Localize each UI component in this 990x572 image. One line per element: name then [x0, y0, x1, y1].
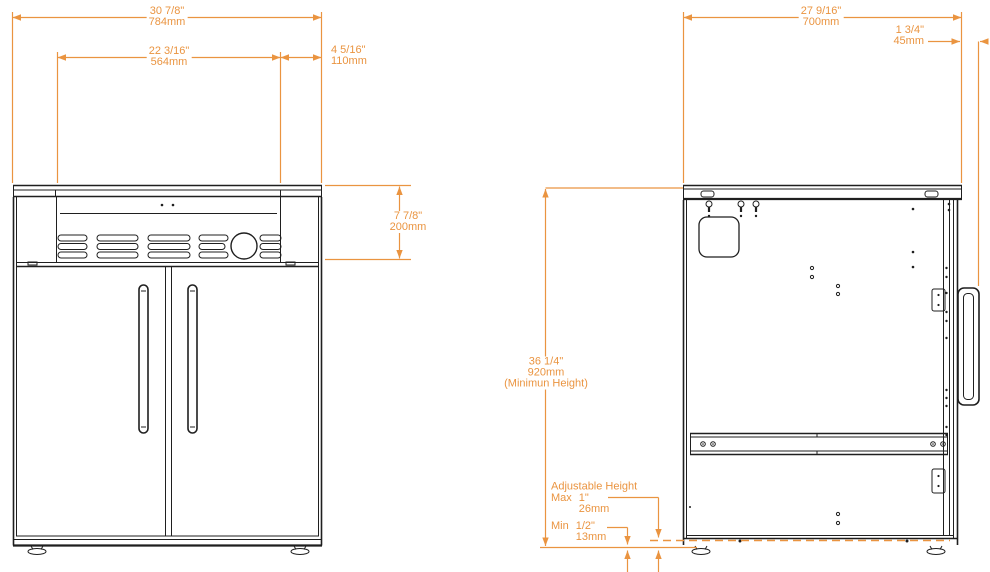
adjustable-height-title: Adjustable Height — [549, 482, 639, 493]
dimension-diagram: 30 7/8" 784mm 22 3/16" 564mm 4 5/16" 110… — [0, 0, 990, 572]
access-panel — [699, 217, 739, 257]
dim-front-inner-width-label: 22 3/16" 564mm — [147, 46, 192, 68]
control-panel — [57, 197, 282, 262]
front-feet — [28, 546, 309, 555]
adjustable-height-min: Min 1/2" 13mm — [549, 521, 608, 543]
cross-rail — [690, 433, 948, 455]
adjustable-height-max: Max 1" 26mm — [549, 493, 611, 515]
dim-handle-depth-label: 1 3/4" 45mm — [891, 25, 926, 47]
front-view-drawing — [13, 185, 322, 555]
dim-front-overall-width-label: 30 7/8" 784mm — [147, 6, 188, 28]
dim-back-overall-width-label: 27 9/16" 700mm — [799, 6, 844, 28]
back-view-drawing — [683, 185, 979, 555]
dimension-lines — [13, 12, 987, 572]
door-handle-left — [139, 285, 148, 433]
diagram-linework — [0, 0, 990, 572]
control-knob — [231, 233, 257, 259]
hinge-mark-left — [28, 262, 37, 265]
vent-slats — [58, 235, 281, 258]
double-doors — [139, 267, 197, 536]
top-bolts — [706, 201, 759, 217]
dim-min-height-label: 36 1/4" 920mm (Minimun Height) — [502, 357, 590, 390]
back-feet — [692, 546, 945, 555]
dim-front-side-width-label: 4 5/16" 110mm — [329, 45, 369, 67]
side-handle — [958, 288, 979, 405]
door-handle-right — [188, 285, 197, 433]
hinge-mark-right — [286, 262, 295, 265]
screw-dots — [689, 203, 950, 525]
dim-front-top-height-label: 7 7/8" 200mm — [388, 211, 429, 233]
